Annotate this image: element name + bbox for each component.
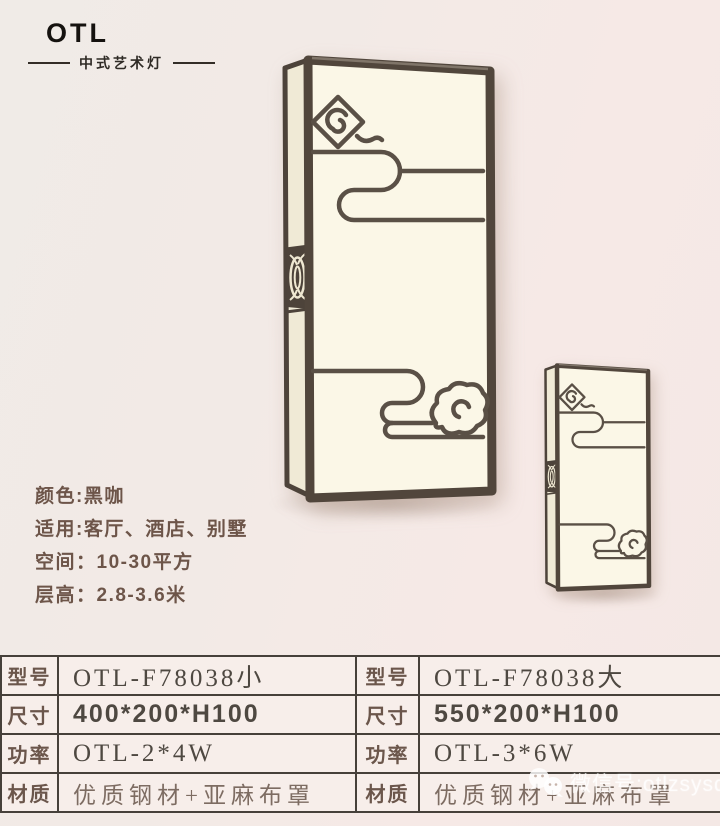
spec-label-material-left: 材质	[1, 773, 58, 812]
spec-value-power-small: OTL-2*4W	[58, 734, 356, 773]
spec-label-material-right: 材质	[356, 773, 419, 812]
product-info: 颜色:黑咖 适用:客厅、酒店、别墅 空间：10-30平方 层高：2.8-3.6米	[35, 480, 248, 612]
tagline-rule-left	[28, 62, 70, 64]
spec-row-material: 材质 优质钢材+亚麻布罩 材质 优质钢材+亚麻布罩	[1, 773, 720, 812]
info-usage: 适用:客厅、酒店、别墅	[35, 513, 248, 546]
wall-lamp-image-large	[270, 55, 510, 515]
spec-value-model-small: OTL-F78038小	[58, 656, 356, 695]
tagline-text: 中式艺术灯	[79, 53, 164, 73]
brand-name: OTL	[46, 18, 215, 49]
spec-row-model: 型号 OTL-F78038小 型号 OTL-F78038大	[1, 656, 720, 695]
brand-tagline: 中式艺术灯	[28, 53, 215, 73]
info-color: 颜色:黑咖	[35, 480, 248, 513]
spec-table: 型号 OTL-F78038小 型号 OTL-F78038大 尺寸 400*200…	[0, 655, 720, 813]
brand-logo: OTL 中式艺术灯	[28, 18, 215, 73]
spec-value-model-large: OTL-F78038大	[419, 656, 720, 695]
spec-row-power: 功率 OTL-2*4W 功率 OTL-3*6W	[1, 734, 720, 773]
spec-value-power-large: OTL-3*6W	[419, 734, 720, 773]
spec-label-model-left: 型号	[1, 656, 58, 695]
spec-value-material-large: 优质钢材+亚麻布罩	[419, 773, 720, 812]
spec-value-material-small: 优质钢材+亚麻布罩	[58, 773, 356, 812]
info-ceiling-height: 层高：2.8-3.6米	[35, 579, 248, 612]
spec-label-power-right: 功率	[356, 734, 419, 773]
spec-row-size: 尺寸 400*200*H100 尺寸 550*200*H100	[1, 695, 720, 734]
spec-value-size-large: 550*200*H100	[419, 695, 720, 734]
tagline-rule-right	[173, 62, 215, 64]
product-poster: OTL 中式艺术灯 颜色:黑咖 适用:客厅、酒店、别墅 空间：10-30平方 层…	[0, 0, 720, 826]
wall-lamp-image-small	[538, 363, 658, 598]
info-space: 空间：10-30平方	[35, 546, 248, 579]
spec-label-size-right: 尺寸	[356, 695, 419, 734]
spec-label-power-left: 功率	[1, 734, 58, 773]
spec-label-model-right: 型号	[356, 656, 419, 695]
spec-value-size-small: 400*200*H100	[58, 695, 356, 734]
spec-label-size-left: 尺寸	[1, 695, 58, 734]
